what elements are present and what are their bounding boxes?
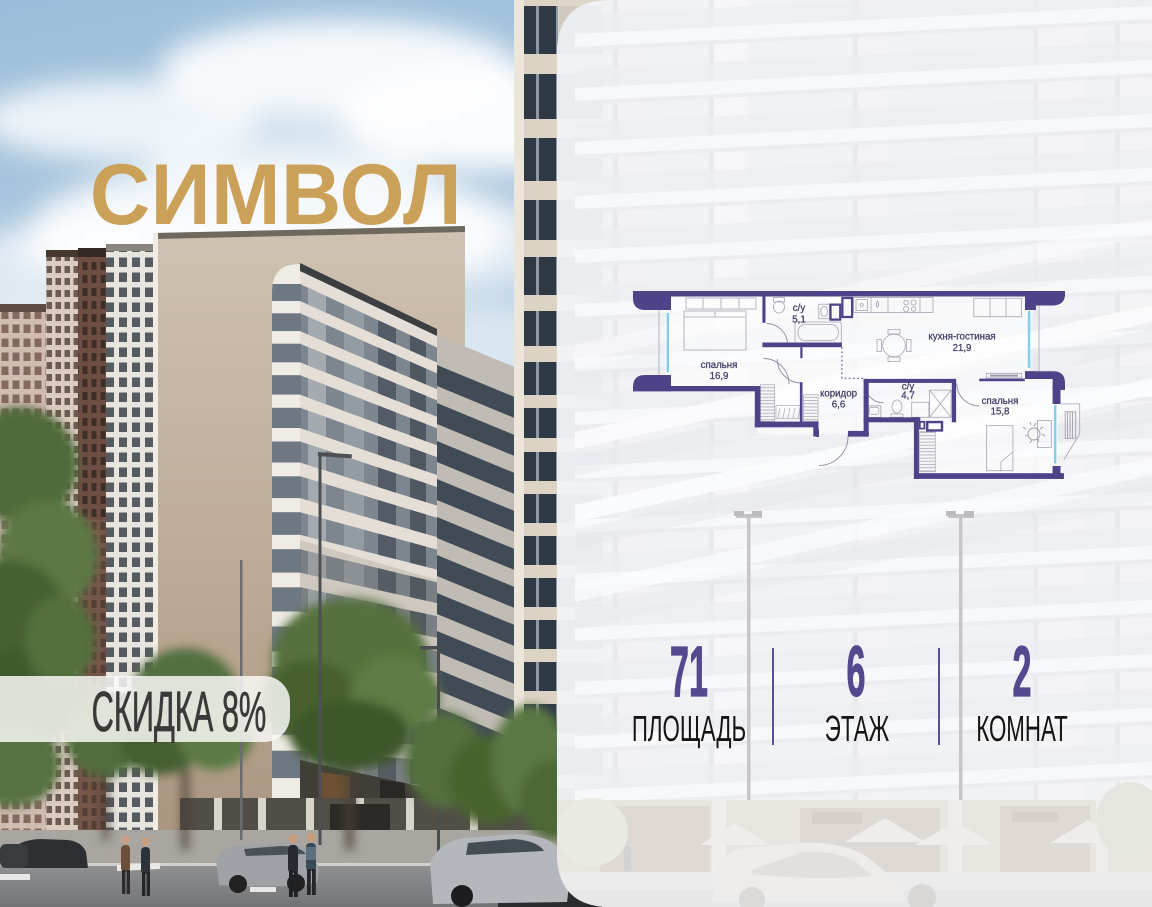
svg-text:коридор: коридор [820,389,857,400]
svg-text:спальня: спальня [701,360,738,371]
svg-text:спальня: спальня [982,396,1019,407]
svg-text:16,9: 16,9 [710,371,729,382]
svg-text:6,6: 6,6 [832,400,845,411]
svg-text:5,1: 5,1 [792,315,805,326]
svg-text:15,8: 15,8 [991,407,1010,418]
svg-text:4,7: 4,7 [901,391,914,402]
svg-text:21,9: 21,9 [953,343,972,354]
svg-text:с/у: с/у [793,303,806,314]
svg-text:кухня-гостиная: кухня-гостиная [928,332,995,343]
